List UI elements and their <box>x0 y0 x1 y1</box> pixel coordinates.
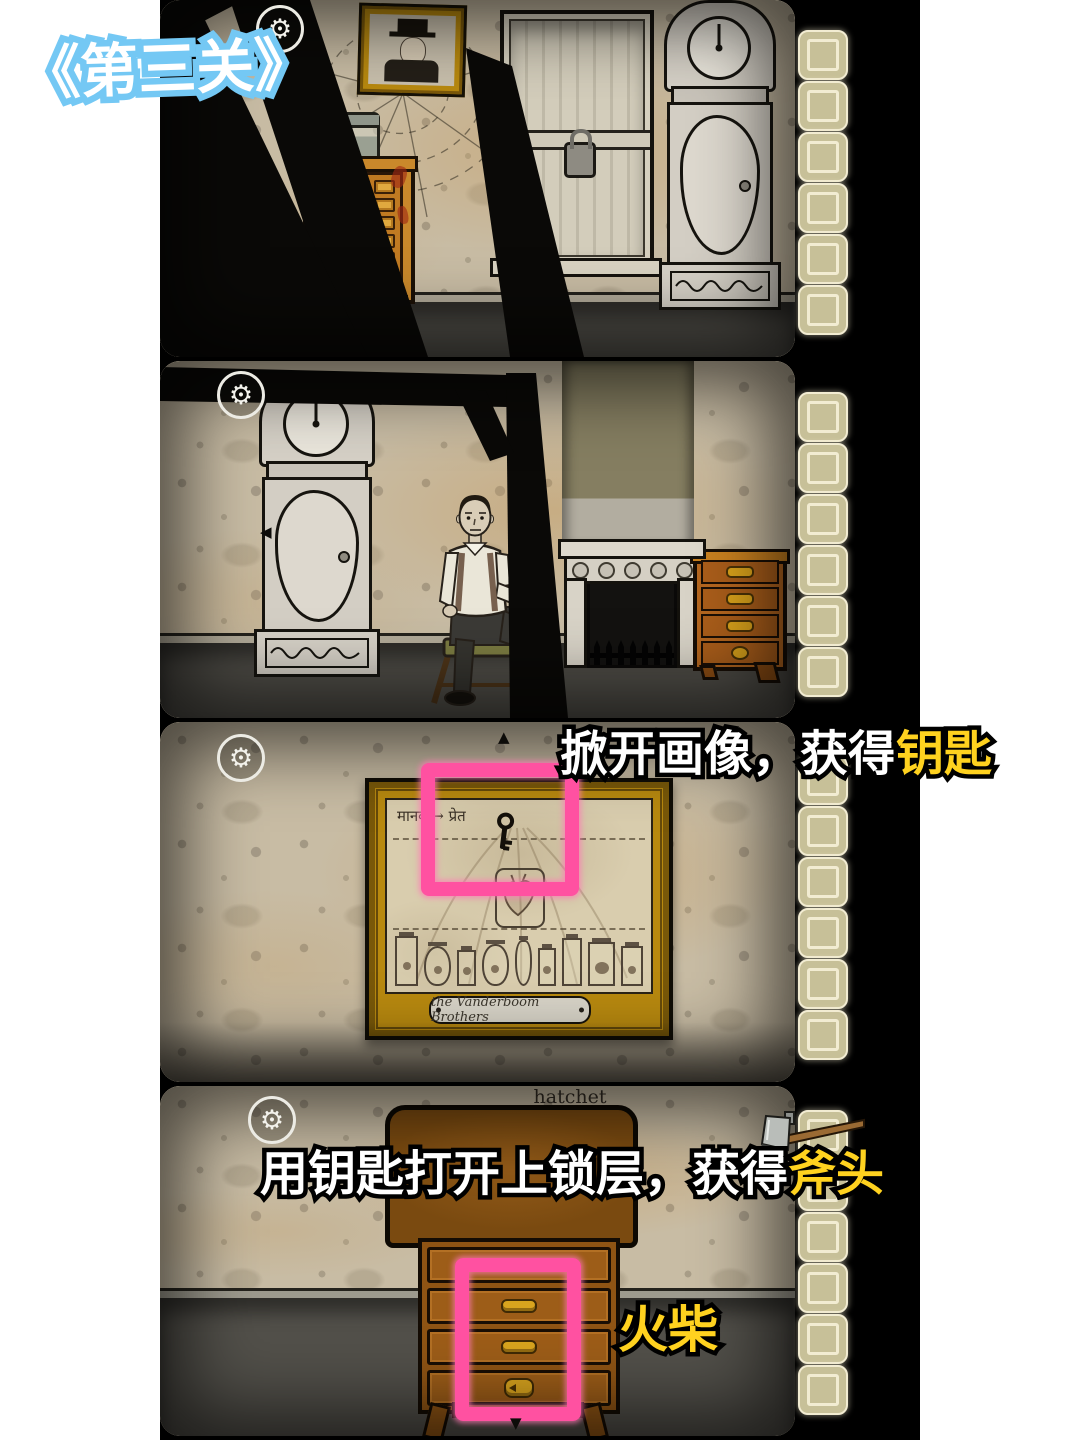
inventory-slot-inner <box>807 1323 839 1355</box>
specimen-jar[interactable] <box>621 946 643 986</box>
gear-icon: ⚙ <box>229 743 253 774</box>
inventory-slot-inner <box>807 192 839 224</box>
inventory-slot-inner <box>807 39 839 71</box>
inventory-slot[interactable] <box>798 908 848 958</box>
inventory-slot[interactable] <box>798 81 848 131</box>
inventory-slot-inner <box>807 917 839 949</box>
settings-button[interactable]: ⚙ <box>217 371 265 419</box>
attic-beams <box>160 361 795 718</box>
inventory-slot-inner <box>807 968 839 1000</box>
inventory-slot[interactable] <box>798 647 848 697</box>
highlight-box-key <box>421 763 579 896</box>
inventory-slot-inner <box>807 503 839 535</box>
annotation-step1-white: 掀开画像，获得 <box>560 726 896 782</box>
inventory-slot[interactable] <box>798 285 848 335</box>
inventory-slot-inner <box>807 866 839 898</box>
specimen-jar[interactable] <box>482 944 509 986</box>
gear-icon: ⚙ <box>229 380 253 411</box>
inventory-slot-inner <box>807 1374 839 1406</box>
panel-sitting-man-room: ⚙ ◀ <box>160 361 920 718</box>
inventory-strip <box>795 361 920 718</box>
inventory-slot-inner <box>807 1019 839 1051</box>
inventory-slot-inner <box>807 1221 839 1253</box>
gear-icon: ⚙ <box>260 1105 284 1136</box>
inventory-slot[interactable] <box>798 443 848 493</box>
annotation-step1: 掀开画像，获得钥匙 <box>560 714 992 784</box>
specimen-jar[interactable] <box>395 936 418 986</box>
level-badge: 《第三关》 <box>21 17 314 111</box>
inventory-slot[interactable] <box>798 1365 848 1415</box>
inventory-slot[interactable] <box>798 959 848 1009</box>
annotation-step2-yellow: 斧头 <box>788 1146 884 1202</box>
highlight-box-drawers <box>455 1258 581 1421</box>
specimen-jar[interactable] <box>424 946 451 986</box>
specimen-jar[interactable] <box>588 942 615 986</box>
item-name-label: hatchet <box>500 1086 640 1108</box>
settings-button[interactable]: ⚙ <box>217 734 265 782</box>
inventory-slot[interactable] <box>798 1314 848 1364</box>
up-arrow-icon[interactable]: ▲ <box>498 730 510 745</box>
frame-plaque: the Vanderboom Brothers <box>429 996 591 1024</box>
inventory-slot[interactable] <box>798 392 848 442</box>
inventory-slot[interactable] <box>798 596 848 646</box>
matches-label: 火柴 <box>618 1290 718 1362</box>
inventory-slot[interactable] <box>798 30 848 80</box>
specimen-jars-row <box>395 934 643 986</box>
inventory-slot-inner <box>807 243 839 275</box>
inventory-slot-inner <box>807 656 839 688</box>
inventory-slot[interactable] <box>798 857 848 907</box>
specimen-jar[interactable] <box>457 950 476 986</box>
inventory-slot[interactable] <box>798 234 848 284</box>
specimen-jar[interactable] <box>515 940 532 986</box>
inventory-slot[interactable] <box>798 1212 848 1262</box>
specimen-jar[interactable] <box>562 938 582 986</box>
room-scene-2[interactable]: ⚙ ◀ <box>160 361 795 718</box>
inventory-slot-inner <box>807 605 839 637</box>
inventory-slot-inner <box>807 294 839 326</box>
inventory-slot[interactable] <box>798 1263 848 1313</box>
inventory-slot-inner <box>807 554 839 586</box>
inventory-slot-inner <box>807 815 839 847</box>
annotation-step1-yellow: 钥匙 <box>896 726 992 782</box>
inventory-slot[interactable] <box>798 545 848 595</box>
inventory-slot-inner <box>807 1272 839 1304</box>
inventory-strip <box>795 0 920 357</box>
inventory-slot-inner <box>807 90 839 122</box>
inventory-slot[interactable] <box>798 1010 848 1060</box>
inventory-slot[interactable] <box>798 494 848 544</box>
floor-shadow <box>160 1022 795 1082</box>
inventory-slot-inner <box>807 401 839 433</box>
dashed-line <box>393 928 645 930</box>
annotation-step2: 用钥匙打开上锁层，获得斧头 <box>260 1134 884 1204</box>
down-arrow-icon[interactable]: ▼ <box>510 1416 522 1431</box>
annotation-step2-white: 用钥匙打开上锁层，获得 <box>260 1146 788 1202</box>
inventory-slot-inner <box>807 141 839 173</box>
inventory-slot-inner <box>807 452 839 484</box>
walkthrough-page: ⚙ <box>0 0 1080 1440</box>
left-arrow-icon[interactable]: ◀ <box>260 525 272 540</box>
inventory-slot[interactable] <box>798 806 848 856</box>
inventory-slot[interactable] <box>798 183 848 233</box>
inventory-slot[interactable] <box>798 132 848 182</box>
specimen-jar[interactable] <box>538 948 557 986</box>
